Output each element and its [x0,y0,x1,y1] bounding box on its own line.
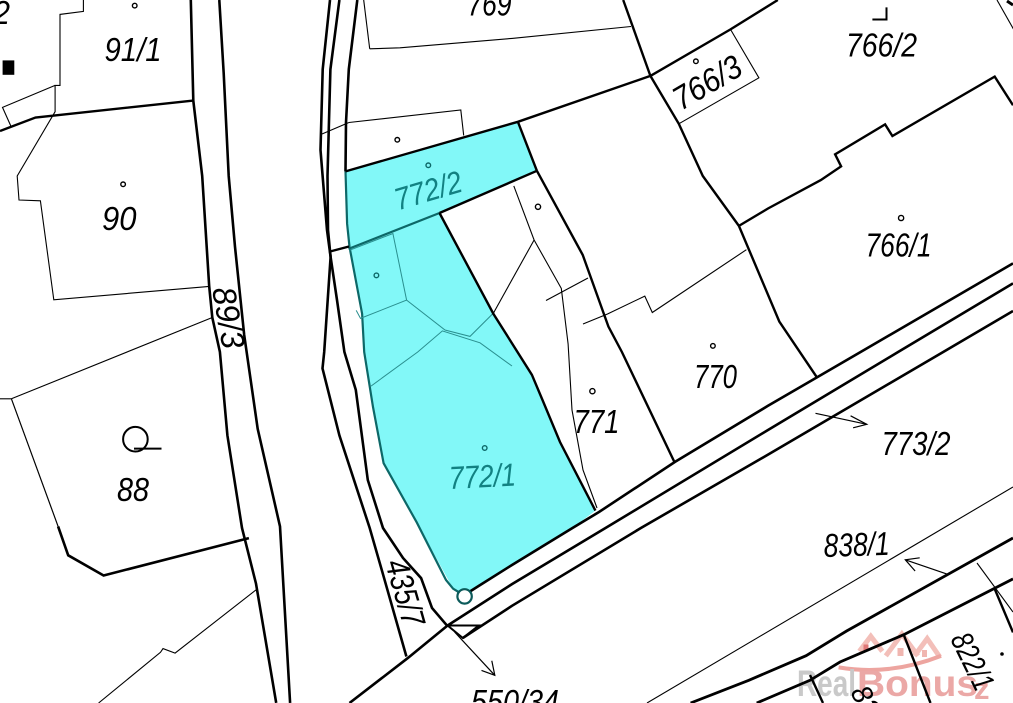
svg-text:771: 771 [574,403,620,440]
svg-text:772/1: 772/1 [448,457,517,496]
svg-text:838/1: 838/1 [823,525,890,564]
svg-text:766/1: 766/1 [866,227,932,264]
svg-text:769: 769 [468,0,512,23]
svg-text:550/34: 550/34 [471,683,559,703]
svg-text:88: 88 [117,471,150,508]
svg-text:766/2: 766/2 [846,27,917,64]
svg-text:91/1: 91/1 [105,31,162,68]
svg-text:90: 90 [102,200,137,237]
svg-text:770: 770 [694,358,738,395]
svg-text:2: 2 [0,0,10,31]
svg-text:773/2: 773/2 [882,425,951,462]
